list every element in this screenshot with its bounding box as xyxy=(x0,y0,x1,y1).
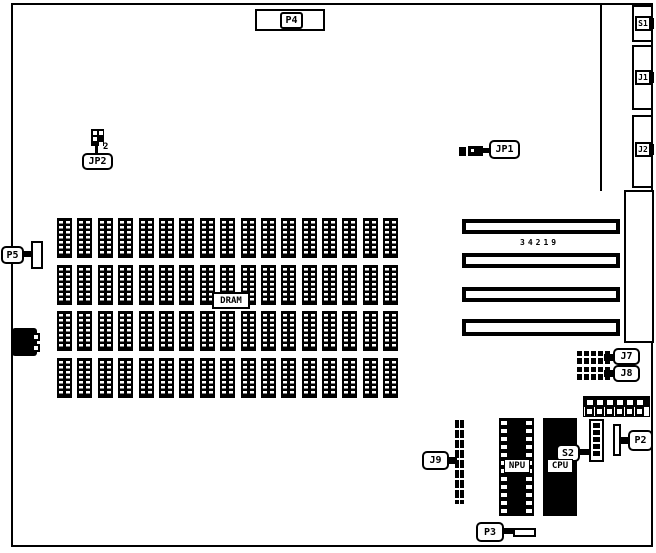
dram-chip xyxy=(139,311,154,351)
p3-connector xyxy=(513,528,536,537)
jp2-pin-count: 2 xyxy=(103,142,108,152)
bus-slot xyxy=(462,219,620,234)
dram-chip xyxy=(118,358,133,398)
dram-chip xyxy=(200,311,215,351)
dram-chip xyxy=(57,218,72,258)
header-pin xyxy=(585,407,594,416)
dram-chip xyxy=(118,311,133,351)
dram-chip xyxy=(220,311,235,351)
dram-chip xyxy=(241,311,256,351)
dram-chip xyxy=(383,358,398,398)
dram-chip xyxy=(302,218,317,258)
p5-connector xyxy=(31,241,43,269)
dram-chip xyxy=(281,218,296,258)
p4-label: P4 xyxy=(280,12,303,29)
switch-segment xyxy=(593,444,600,449)
header-pin xyxy=(586,399,594,406)
dram-chip xyxy=(159,311,174,351)
dram-row xyxy=(57,311,398,351)
dram-chip xyxy=(302,311,317,351)
dram-chip xyxy=(139,358,154,398)
dram-chip xyxy=(363,358,378,398)
dram-chip xyxy=(118,265,133,305)
jp1-label: JP1 xyxy=(489,140,520,159)
dram-chip xyxy=(363,311,378,351)
dram-chip xyxy=(139,218,154,258)
dram-chip xyxy=(261,218,276,258)
npu-label: NPU xyxy=(504,459,530,473)
dram-chip xyxy=(261,265,276,305)
dram-chip xyxy=(220,218,235,258)
dram-chip xyxy=(281,265,296,305)
p2-label: P2 xyxy=(628,430,653,451)
dram-chip xyxy=(302,358,317,398)
dram-chip xyxy=(261,311,276,351)
dram-chip xyxy=(179,358,194,398)
dram-chip xyxy=(118,218,133,258)
board-outline-segment xyxy=(600,3,602,191)
dram-chip xyxy=(302,265,317,305)
header-pin xyxy=(636,399,644,406)
switch-segment xyxy=(593,430,600,435)
dram-chip xyxy=(322,311,337,351)
switch-segment xyxy=(593,437,600,442)
j7-label: J7 xyxy=(613,348,640,365)
dram-chip xyxy=(322,358,337,398)
dram-chip xyxy=(77,311,92,351)
header-pin xyxy=(596,399,604,406)
switch-segment xyxy=(593,451,600,456)
dram-chip xyxy=(383,311,398,351)
bus-slot xyxy=(462,287,620,302)
dram-chip xyxy=(261,358,276,398)
bus-slots xyxy=(462,219,620,336)
dram-chip xyxy=(200,358,215,398)
header-pin xyxy=(626,399,634,406)
header-block-top-row xyxy=(584,397,649,407)
dram-chip xyxy=(77,218,92,258)
dram-row xyxy=(57,218,398,258)
dram-chip xyxy=(322,265,337,305)
dram-row xyxy=(57,358,398,398)
dram-chip xyxy=(139,265,154,305)
cpu-label: CPU xyxy=(547,459,573,473)
slot-marking: 34219 xyxy=(520,238,559,247)
dram-chip xyxy=(179,218,194,258)
header-pin xyxy=(595,407,604,416)
motherboard-diagram: S1 J1 J2 P4 2 JP2 JP1 P5 DRAM 34219 J7 J… xyxy=(0,0,656,553)
dram-chip xyxy=(200,218,215,258)
jp1-jumper-icon xyxy=(459,147,466,156)
dram-chip xyxy=(159,358,174,398)
dram-chip xyxy=(220,358,235,398)
header-pin xyxy=(635,407,644,416)
dram-chip xyxy=(281,311,296,351)
s1-label: S1 xyxy=(635,16,651,31)
dram-chip xyxy=(383,265,398,305)
dram-chip xyxy=(98,358,113,398)
dram-chip xyxy=(281,358,296,398)
dram-chip xyxy=(179,265,194,305)
dram-chip xyxy=(342,311,357,351)
right-edge-region xyxy=(624,190,654,343)
dram-chip xyxy=(57,311,72,351)
dram-chip xyxy=(342,218,357,258)
j9-label: J9 xyxy=(422,451,449,470)
dram-chip xyxy=(241,358,256,398)
dram-chip xyxy=(98,265,113,305)
jp2-label: JP2 xyxy=(82,153,113,170)
header-pin xyxy=(606,399,614,406)
p3-label: P3 xyxy=(476,522,504,542)
p5-label: P5 xyxy=(1,246,24,264)
bus-slot xyxy=(462,253,620,268)
j2-label: J2 xyxy=(635,142,651,157)
keyboard-connector xyxy=(12,328,37,356)
dram-chip xyxy=(383,218,398,258)
header-pin-block xyxy=(583,396,650,417)
s2-dip-switch xyxy=(589,419,604,462)
dram-chip xyxy=(159,265,174,305)
dram-label: DRAM xyxy=(212,292,250,309)
dram-chip xyxy=(57,358,72,398)
header-pin xyxy=(616,399,624,406)
j1-label: J1 xyxy=(635,70,651,85)
dram-chip xyxy=(342,358,357,398)
header-block-bottom-row xyxy=(584,407,649,416)
dram-chip xyxy=(57,265,72,305)
dram-chip xyxy=(159,218,174,258)
dram-chip xyxy=(98,311,113,351)
header-pin xyxy=(615,407,624,416)
switch-segment xyxy=(593,423,600,428)
dram-chip xyxy=(77,358,92,398)
dram-chip xyxy=(363,265,378,305)
j8-label: J8 xyxy=(613,365,640,382)
dram-chip xyxy=(179,311,194,351)
dram-chip xyxy=(342,265,357,305)
header-pin xyxy=(605,407,614,416)
dram-chip xyxy=(363,218,378,258)
dram-chip xyxy=(241,218,256,258)
dram-chip xyxy=(77,265,92,305)
header-pin xyxy=(625,407,634,416)
dram-chip xyxy=(98,218,113,258)
dram-chip xyxy=(322,218,337,258)
bus-slot xyxy=(462,319,620,336)
